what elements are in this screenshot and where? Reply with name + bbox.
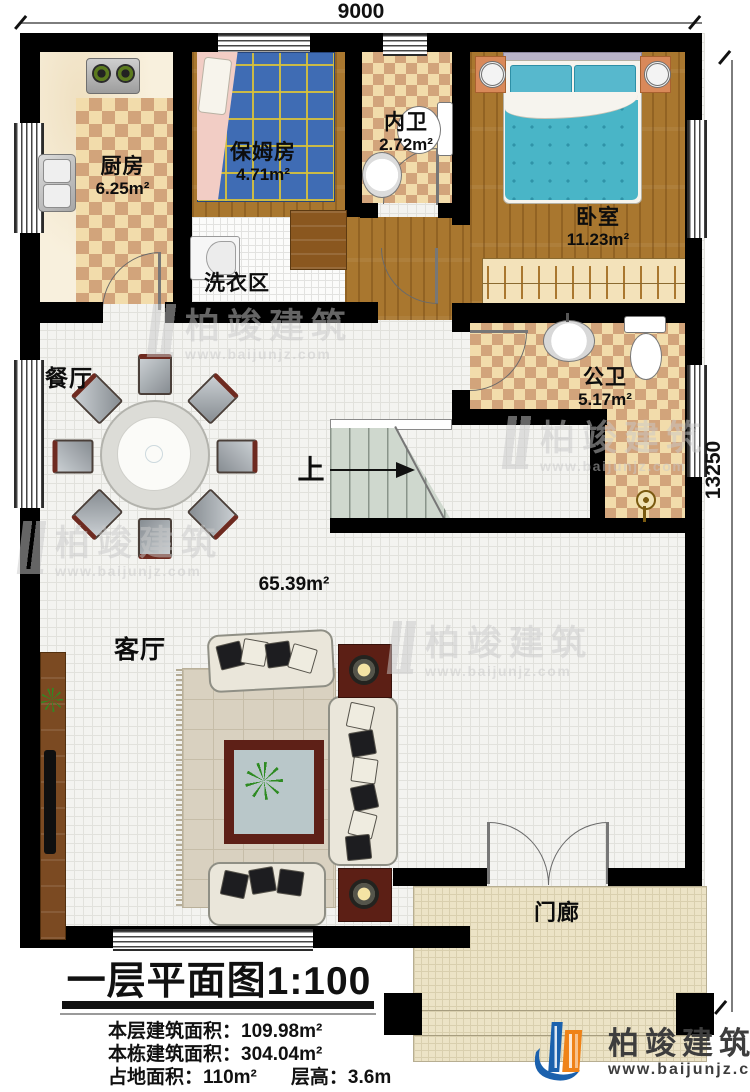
nanny-area: 4.71m² [212,165,314,184]
stairs-direction-arrowhead [396,462,415,478]
inner-bath-label: 内卫 2.72m² [358,111,454,154]
stat-label: 本栋建筑面积： [108,1044,241,1065]
entry-door-left-leaf [487,822,490,884]
stove-burner-left [92,64,111,83]
wall-innerbath-bottom-b [438,203,452,218]
stat-value: 3.6m [348,1067,391,1088]
dining-label: 餐厅 [33,366,105,392]
bedroom-label: 卧室 11.23m² [548,206,648,249]
stat-value: 304.04m² [241,1044,322,1065]
shower-head-stem [643,506,646,522]
stove-burner-right [116,64,135,83]
living-label: 客厅 [108,636,172,664]
coffee-table-plant [245,762,283,800]
bedroom-area: 11.23m² [548,230,648,249]
sofa-pillow [276,868,304,896]
sofa-pillow [248,866,277,895]
kitchen-door-leaf [158,252,161,310]
stat-label: 本层建筑面积： [108,1021,241,1042]
washing-machine-door [206,241,236,275]
dimension-top-label: 9000 [316,0,406,24]
stat-line-floor-area: 本层建筑面积：109.98m² [108,1020,391,1043]
tv-cabinet-plant [41,688,63,712]
dimension-tick [718,50,731,65]
stat-label: 层高： [291,1067,348,1088]
area-rug-fringe [176,668,182,906]
window-top-innerbath [383,33,427,56]
kitchen-sink-basin-bottom [43,184,71,208]
dimension-line-right [731,60,733,1012]
living-floor-area-label: 65.39m² [244,574,344,595]
brand-logo-block: 柏竣建筑 www.baijunjz.com [528,1018,750,1082]
pubbath-sink [543,320,595,362]
dining-chair [53,440,94,474]
inner-bath-name: 内卫 [358,111,454,135]
wall-pubbath-left-a [452,323,470,332]
wall-stairs-bottom [330,518,605,533]
title-underline-thin [60,1013,376,1015]
sofa-pillow [350,756,378,784]
wall-shower-bottom [603,518,702,533]
stat-value: 109.98m² [241,1021,322,1042]
public-bath-area: 5.17m² [563,390,647,409]
shower-head [636,490,656,510]
dining-chair [138,518,172,559]
wall-innerbath-bedroom [452,33,470,225]
stat-value: 110m² [203,1067,257,1088]
nanny-closet [290,210,347,270]
wall-mid-b [165,302,378,323]
sofa-pillow [346,702,376,732]
kitchen-area: 6.25m² [75,179,170,198]
stat-label: 占地面积： [108,1067,203,1088]
wall-entry-left [393,868,487,886]
title-underline-bar [62,1001,374,1009]
window-right-bedroom [687,120,707,238]
pubbath-door-leaf [470,330,528,333]
brand-name: 柏竣建筑 [608,1018,750,1063]
window-bottom-living [113,929,313,951]
public-bath-name: 公卫 [563,366,647,390]
inner-bath-area: 2.72m² [358,135,454,154]
wall-innerbath-bottom-a [360,203,378,218]
kitchen-sink-basin-top [43,159,71,183]
laundry-label: 洗衣区 [190,272,284,296]
sofa-pillow [345,834,372,861]
porch-label: 门廊 [522,901,592,926]
nightstand-right-lamp [644,61,671,88]
sofa-pillow [348,729,377,758]
stat-line-footprint-height: 占地面积：110m²层高：3.6m [108,1066,391,1089]
stats-block: 本层建筑面积：109.98m² 本栋建筑面积：304.04m² 占地面积：110… [108,1020,391,1089]
floor-plan-page: 上 [0,0,750,1092]
nanny-name: 保姆房 [212,141,314,165]
bedroom-name: 卧室 [548,206,648,230]
brand-url: www.baijunjz.com [608,1061,750,1079]
plan-title: 一层平面图1:100 [62,950,376,1006]
stat-line-building-area: 本栋建筑面积：304.04m² [108,1043,391,1066]
tv-screen [44,750,56,854]
dimension-right-label: 13250 [702,415,726,525]
wall-mid-a [20,302,103,323]
pubbath-sink-faucet [566,313,569,322]
innerbath-sink [362,152,402,198]
brand-logo-icon [528,1018,602,1082]
bedroom-wardrobe [482,258,687,307]
stairs-direction-line [330,469,400,471]
side-table-top-lamp [349,655,379,685]
porch-pillar-left [384,993,422,1035]
dining-chair [217,440,258,474]
kitchen-name: 厨房 [75,155,170,179]
nightstand-left-lamp [479,61,506,88]
dining-table-center [145,445,163,463]
pubbath-toilet-tank [624,316,666,333]
public-bath-label: 公卫 5.17m² [563,366,647,409]
wall-corridor-shower [590,409,605,533]
wall-entry-right [608,868,702,886]
dimension-tick [714,1000,727,1015]
kitchen-label: 厨房 6.25m² [75,155,170,198]
bedroom-door-leaf [435,248,438,303]
stairs-up-label: 上 [294,455,328,485]
side-table-bottom-lamp [349,879,379,909]
dining-chair [138,354,172,395]
innerbath-door-leaf [436,148,439,205]
sofa-pillow [350,783,380,813]
nanny-label: 保姆房 4.71m² [212,141,314,184]
sofa-pillow [220,870,250,900]
wall-pubbath-bottom [452,409,607,425]
